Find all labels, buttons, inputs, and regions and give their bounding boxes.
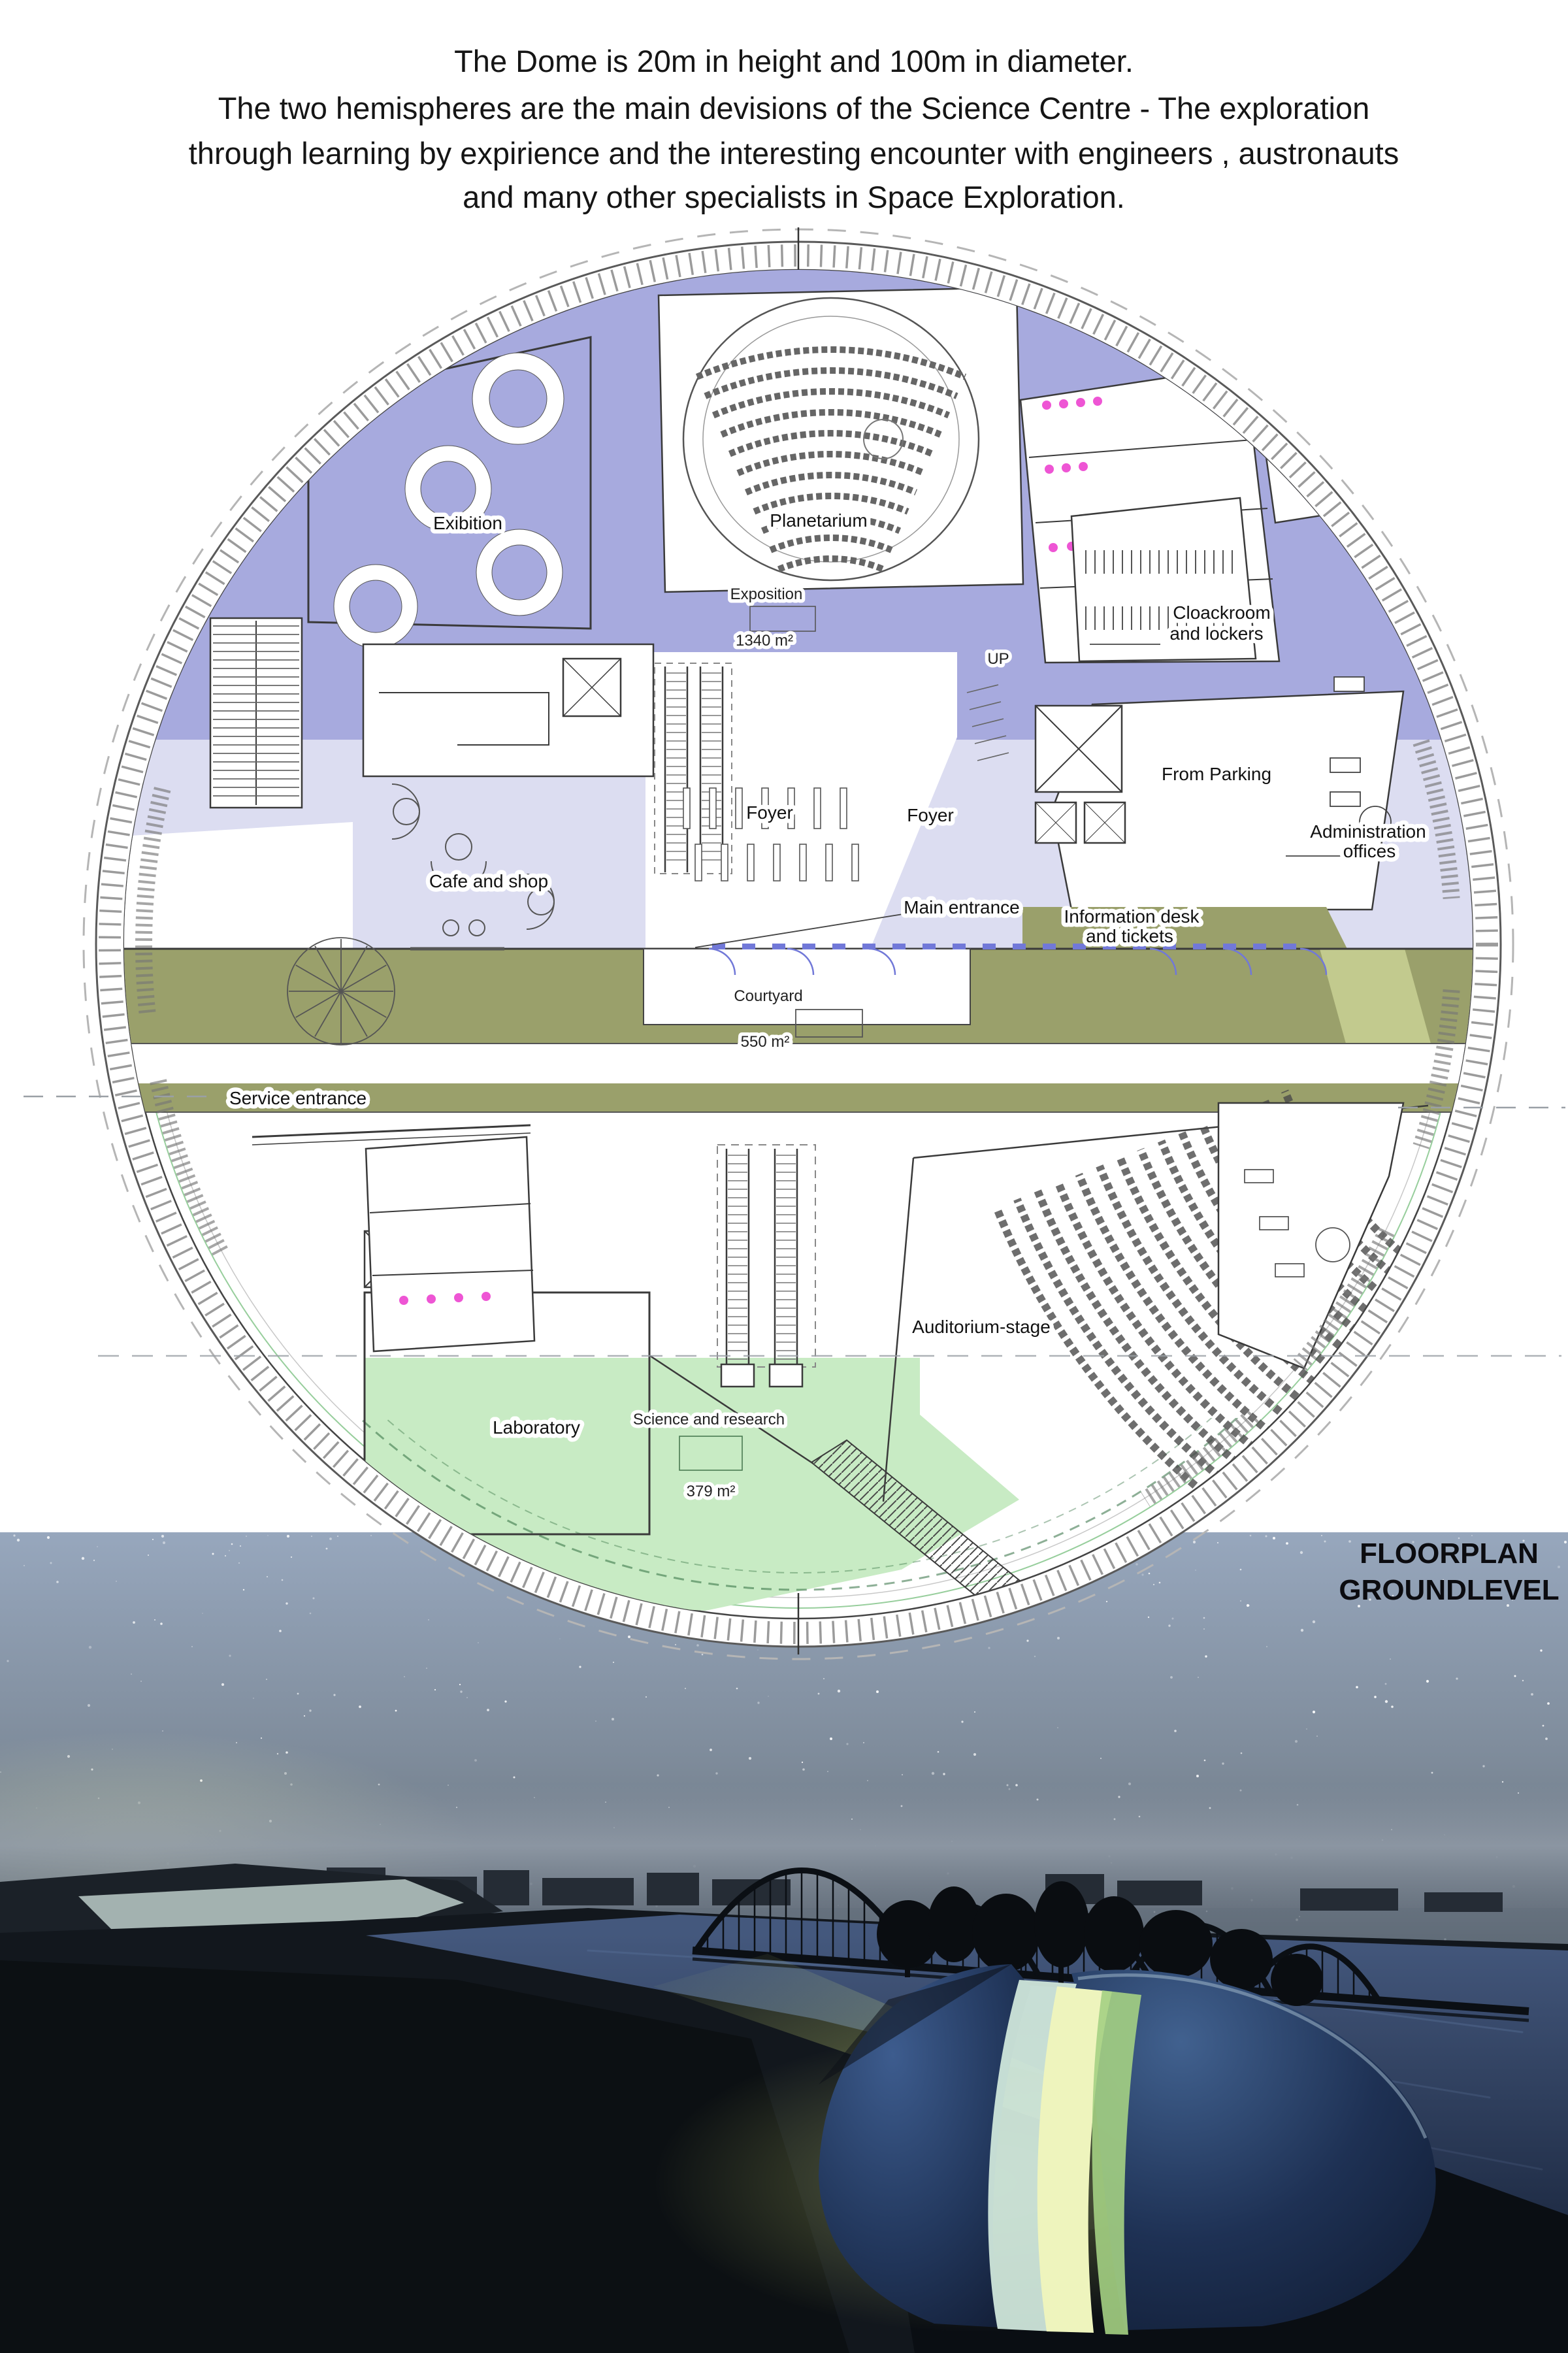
label-cloakroom-2: and lockers	[1169, 623, 1263, 644]
header-line-2: The two hemispheres are the main devisio…	[218, 91, 1370, 125]
label-service-entrance: Service entrance	[229, 1088, 367, 1108]
esplanade-band	[98, 1044, 1509, 1083]
label-admin-1: Administration	[1310, 821, 1426, 842]
label-main-entrance: Main entrance	[904, 897, 1019, 917]
label-exibition: Exibition	[433, 513, 502, 533]
label-from-parking: From Parking	[1162, 764, 1271, 784]
label-science-area: 379 m²	[687, 1483, 736, 1500]
label-cloakroom-1: Cloackroom	[1173, 602, 1270, 623]
service-yard-white	[98, 822, 353, 949]
label-science: Science and research	[633, 1411, 785, 1428]
header-line-3: through learning by expirience and the i…	[189, 136, 1399, 171]
label-cafe-shop: Cafe and shop	[429, 871, 548, 891]
label-courtyard-area: 550 m²	[741, 1033, 790, 1051]
kitchen-block	[363, 644, 653, 776]
courtyard-area	[644, 949, 970, 1037]
board-canvas: The Dome is 20m in height and 100m in di…	[0, 0, 1568, 2353]
label-planetarium: Planetarium	[770, 510, 867, 531]
floorplan: Exibition Planetarium Exposition 1340 m²…	[24, 227, 1565, 1659]
label-exposition-area: 1340 m²	[736, 632, 793, 650]
presentation-board: The Dome is 20m in height and 100m in di…	[0, 0, 1568, 2353]
label-info-desk-2: and tickets	[1086, 926, 1173, 946]
night-render: FLOORPLAN GROUNDLEVEL	[0, 1532, 1568, 2353]
header-line-4: and many other specialists in Space Expl…	[463, 180, 1125, 214]
left-stair-block	[210, 618, 302, 808]
label-auditorium: Auditorium-stage	[912, 1317, 1051, 1337]
stair-rungs	[213, 626, 299, 796]
label-admin-2: offices	[1343, 841, 1396, 861]
label-foyer-left: Foyer	[746, 802, 793, 823]
header-text-block: The Dome is 20m in height and 100m in di…	[189, 44, 1399, 214]
label-info-desk-1: Information desk	[1064, 906, 1200, 927]
caption-floorplan: FLOORPLAN	[1360, 1538, 1539, 1570]
label-laboratory: Laboratory	[493, 1417, 580, 1438]
header-line-1: The Dome is 20m in height and 100m in di…	[454, 44, 1134, 78]
label-foyer-center: Foyer	[907, 805, 954, 825]
label-up: UP	[987, 650, 1009, 668]
spiral-stair	[287, 938, 395, 1045]
planetarium-room	[659, 288, 1023, 592]
label-courtyard: Courtyard	[734, 987, 802, 1005]
label-exposition: Exposition	[730, 585, 803, 603]
caption-groundlevel: GROUNDLEVEL	[1339, 1574, 1559, 1606]
